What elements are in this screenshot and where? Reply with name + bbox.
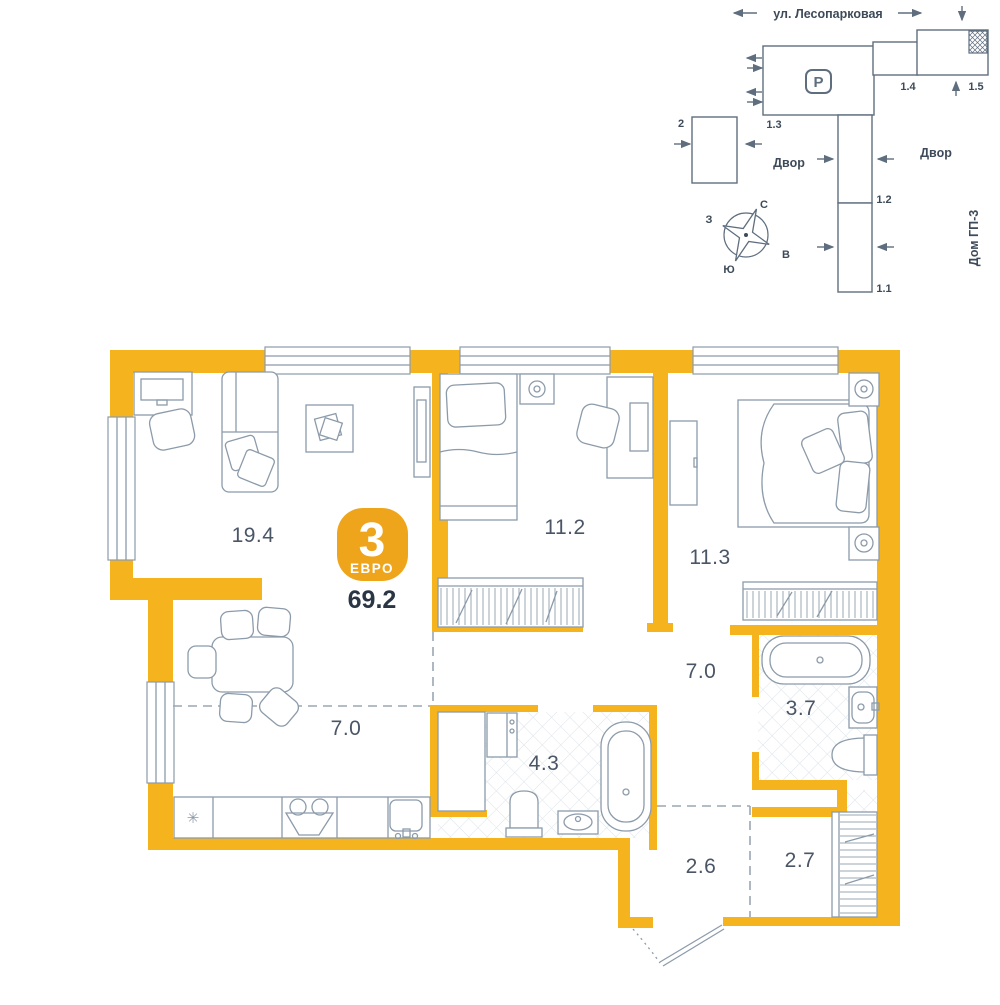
compass-north: С [760,199,768,211]
compass-west: З [706,214,713,226]
bathtub-icon [601,722,651,831]
compass-east: В [782,249,790,261]
double-bed [738,400,877,527]
wardrobe [438,578,583,627]
window-bedroom2-top [693,347,838,374]
dining-furniture [188,607,302,730]
label-1-5: 1.5 [968,81,983,93]
tv-stand [414,387,430,477]
washing-machine-icon [487,713,517,757]
kitchen-furniture: ✳ [174,797,430,839]
corner-sofa [222,372,278,492]
label-1-1: 1.1 [876,283,891,295]
yard-label-2: Двор [920,146,952,160]
door-swing-arc [633,929,660,963]
floorplan-canvas: ул. Лесопарковая P 1.3 1.4 1.5 2 1.2 1.1… [0,0,1000,1000]
entrance-door [633,925,724,966]
bedroom1-area-label: 11.2 [544,516,585,539]
window-bedroom1-top [460,347,610,374]
sink-icon [558,811,598,834]
window-kitchen-left [147,682,174,783]
building-1-1 [838,203,872,292]
total-area-value: 69.2 [348,586,397,614]
neighbor-house-label: Дом ГП-3 [967,210,981,266]
living-area-label: 19.4 [232,524,275,547]
building-2 [692,117,737,183]
sink-icon [849,687,879,728]
bedside-table [520,374,554,404]
floorplan-page: ул. Лесопарковая P 1.3 1.4 1.5 2 1.2 1.1… [0,0,1000,1000]
nightstand-top [849,373,879,406]
label-1-2: 1.2 [876,194,891,206]
living-room-furniture [134,372,430,492]
closet-area-label: 2.7 [785,849,816,872]
apartment-type-badge: 3 ЕВРО 69.2 [337,508,408,614]
kitchen-area-label: 7.0 [331,717,362,740]
nightstand-bottom [849,527,879,560]
storage-cabinet [438,712,485,811]
bathtub-icon [762,636,870,684]
hall-area-label: 7.0 [686,660,717,683]
label-1-4: 1.4 [900,81,916,93]
dining-table [212,637,293,692]
bath-main-area-label: 4.3 [529,752,560,775]
compass-south: Ю [723,264,734,276]
entry-area-label: 2.6 [686,855,717,878]
current-section-marker [969,31,987,53]
site-plan: ул. Лесопарковая P 1.3 1.4 1.5 2 1.2 1.1… [674,6,988,295]
bedroom2-furniture [670,373,879,620]
bedroom1-furniture [438,374,653,627]
floor-plan: ✳ [108,347,900,966]
window-living-top [265,347,410,374]
building-1-4 [873,42,918,75]
door-leaf [660,925,722,962]
bath-second-area-label: 3.7 [786,697,817,720]
compass-rose: С З В Ю [706,199,790,276]
svg-text:P: P [813,74,823,91]
entry-closet-furniture [832,812,877,917]
street-label: ул. Лесопарковая [773,7,882,21]
badge-rooms-count: 3 [359,514,386,567]
bedroom2-area-label: 11.3 [689,546,730,569]
coffee-table [306,405,353,452]
window-living-left [108,417,135,560]
desk [575,377,653,478]
fridge-snowflake-icon: ✳ [187,810,200,827]
building-1-2 [838,115,872,203]
toilet-icon [506,791,542,837]
parking-icon: P [806,70,831,93]
wardrobe-tall [670,421,697,505]
yard-label-1: Двор [773,156,805,170]
label-1-3: 1.3 [766,119,781,131]
single-bed [440,374,517,520]
label-2: 2 [678,118,684,130]
badge-format-label: ЕВРО [350,561,394,576]
clothes-rack [743,582,877,620]
